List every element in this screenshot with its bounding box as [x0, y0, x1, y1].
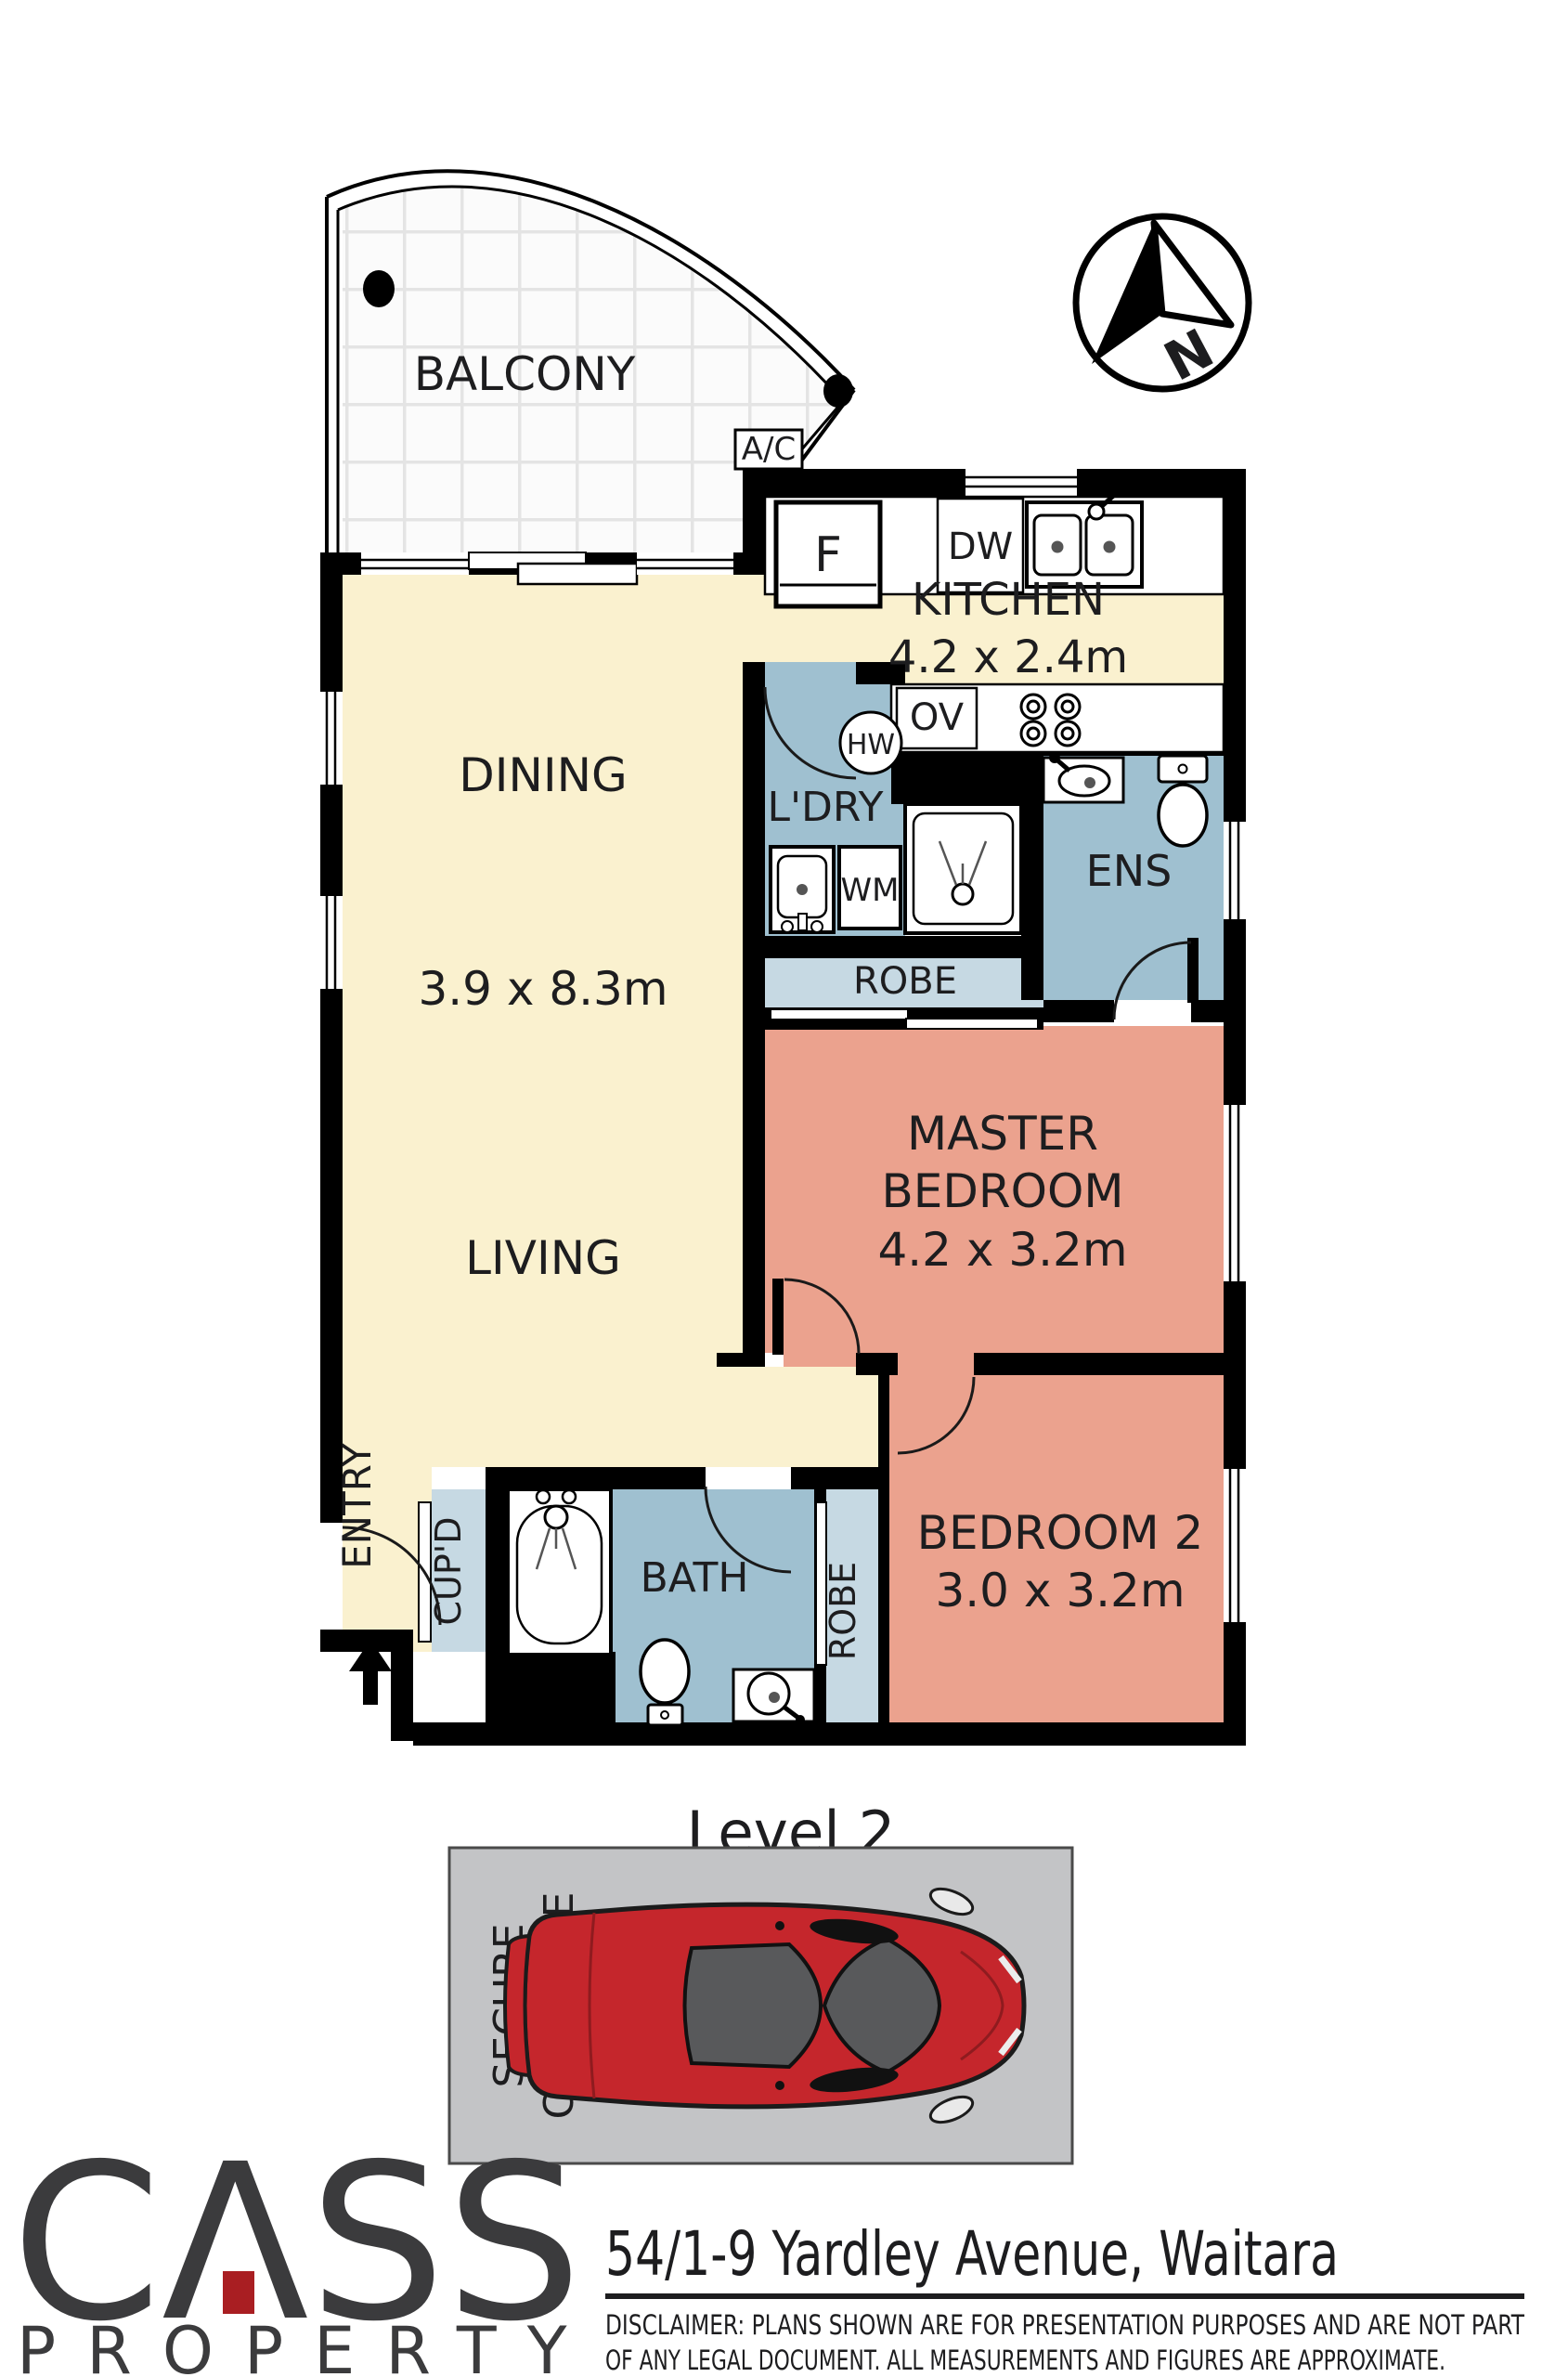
kitchen-label: KITCHEN: [912, 574, 1105, 626]
logo-red-square: [223, 2271, 254, 2314]
cupboard: CUP'D: [419, 1502, 469, 1642]
wall-master-bottom-a: [856, 1353, 898, 1375]
wall-shower-top: [891, 756, 1043, 804]
bathtub-icon: [508, 1489, 611, 1655]
wall-master-bottom-b: [974, 1353, 1224, 1375]
kitchen-dims: 4.2 x 2.4m: [888, 631, 1128, 683]
wall-kitchen-step: [743, 469, 765, 575]
window: [320, 692, 343, 785]
north-compass-icon: N: [1076, 216, 1249, 394]
wall-cupboard-right: [486, 1489, 508, 1652]
robe-slider-door: [771, 1009, 908, 1020]
window: [320, 896, 343, 989]
wall-shower-ens: [1021, 804, 1043, 1000]
address-divider: [605, 2293, 1524, 2299]
robe2-label: ROBE: [823, 1562, 863, 1660]
master-robe-label: ROBE: [853, 960, 957, 1003]
fridge-label: F: [814, 527, 842, 583]
wall-bath-top-b: [791, 1467, 878, 1489]
ensuite-label: ENS: [1086, 846, 1173, 896]
wall-ens-bottom-left: [1043, 1000, 1114, 1022]
basin-icon: [733, 1669, 814, 1724]
disclaimer-line1: DISCLAIMER: PLANS SHOWN ARE FOR PRESENTA…: [605, 2309, 1524, 2341]
oven-label: OV: [910, 696, 965, 739]
ac-label: A/C: [742, 431, 796, 468]
dining-label: DINING: [459, 748, 628, 802]
doorway-master: [784, 1353, 856, 1367]
door-leaf-master: [772, 1279, 784, 1355]
master-label-2: BEDROOM: [882, 1164, 1124, 1218]
floorplan-page: BALCONY: [0, 0, 1568, 2377]
address: 54/1-9 Yardley Avenue, Waitara: [605, 2218, 1339, 2290]
entry-label: ENTRY: [334, 1443, 380, 1569]
master-label-1: MASTER: [907, 1107, 1098, 1161]
window: [1224, 1469, 1246, 1622]
logo: CΛSS PROPERTY: [11, 2118, 597, 2377]
wall-robe-top: [743, 936, 1043, 958]
dishwasher-label: DW: [948, 526, 1013, 568]
wall-cap: [717, 1353, 765, 1367]
washing-machine-icon: WM: [839, 847, 901, 929]
living-label: LIVING: [465, 1231, 621, 1285]
window: [361, 552, 469, 575]
hallway-floor: [765, 1367, 889, 1467]
wall-bedroom2-left: [878, 1375, 889, 1722]
laundry-tub-icon: [771, 847, 834, 932]
wall-ens-bottom-right: [1191, 1000, 1224, 1022]
shower-icon: [905, 804, 1021, 933]
window: [1224, 1105, 1246, 1281]
window: [1224, 822, 1246, 919]
floorplan-drawing: BALCONY: [0, 0, 1568, 2377]
cupboard-label: CUP'D: [428, 1517, 469, 1626]
doorway-bedroom2: [898, 1353, 974, 1375]
wall-bath-corner: [486, 1652, 616, 1746]
toilet-icon: [641, 1640, 689, 1725]
window: [637, 552, 733, 575]
car-space: SECURE CAR SPACE: [449, 1848, 1072, 2163]
bedroom2-label: BEDROOM 2: [917, 1506, 1204, 1560]
window: [965, 469, 1077, 497]
address-block: 54/1-9 Yardley Avenue, Waitara DISCLAIME…: [605, 2218, 1524, 2376]
bedroom2-dims: 3.0 x 3.2m: [935, 1564, 1185, 1617]
balcony-column-dot: [823, 374, 853, 408]
hot-water-label: HW: [847, 729, 895, 761]
toilet-icon: [1159, 756, 1207, 846]
basin-icon: [1043, 752, 1123, 802]
robe-slider-door: [906, 1019, 1038, 1029]
oven-icon: OV: [897, 688, 977, 748]
balcony-label: BALCONY: [414, 347, 636, 401]
fridge-icon: F: [776, 502, 880, 606]
logo-property: PROPERTY: [17, 2313, 597, 2377]
door-leaf-ensuite: [1187, 938, 1199, 1003]
disclaimer-line2: OF ANY LEGAL DOCUMENT. ALL MEASUREMENTS …: [605, 2345, 1445, 2376]
washing-machine-label: WM: [841, 872, 900, 909]
balcony-column-dot: [363, 270, 395, 307]
living-dining-floor: [343, 575, 765, 1467]
living-dims: 3.9 x 8.3m: [418, 962, 667, 1016]
ac-unit: A/C: [735, 430, 802, 469]
master-dims: 4.2 x 3.2m: [877, 1223, 1127, 1277]
bath-label: BATH: [641, 1554, 749, 1602]
wall-entry-step: [391, 1652, 413, 1741]
wall-bath-top-a: [486, 1467, 706, 1489]
laundry-label: L'DRY: [767, 784, 883, 831]
